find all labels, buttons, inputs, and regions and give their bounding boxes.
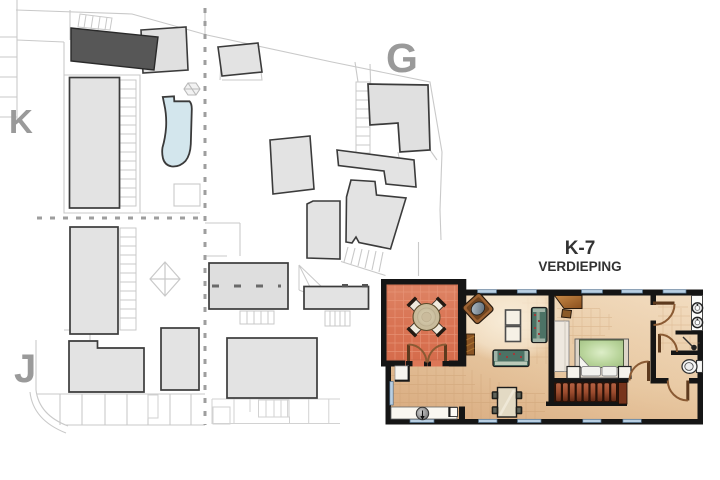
svg-text:K-7: K-7 [565, 238, 596, 259]
svg-text:VERDIEPING: VERDIEPING [538, 259, 621, 274]
svg-text:G: G [386, 35, 418, 81]
svg-text:J: J [14, 347, 36, 391]
svg-text:K: K [9, 103, 33, 140]
